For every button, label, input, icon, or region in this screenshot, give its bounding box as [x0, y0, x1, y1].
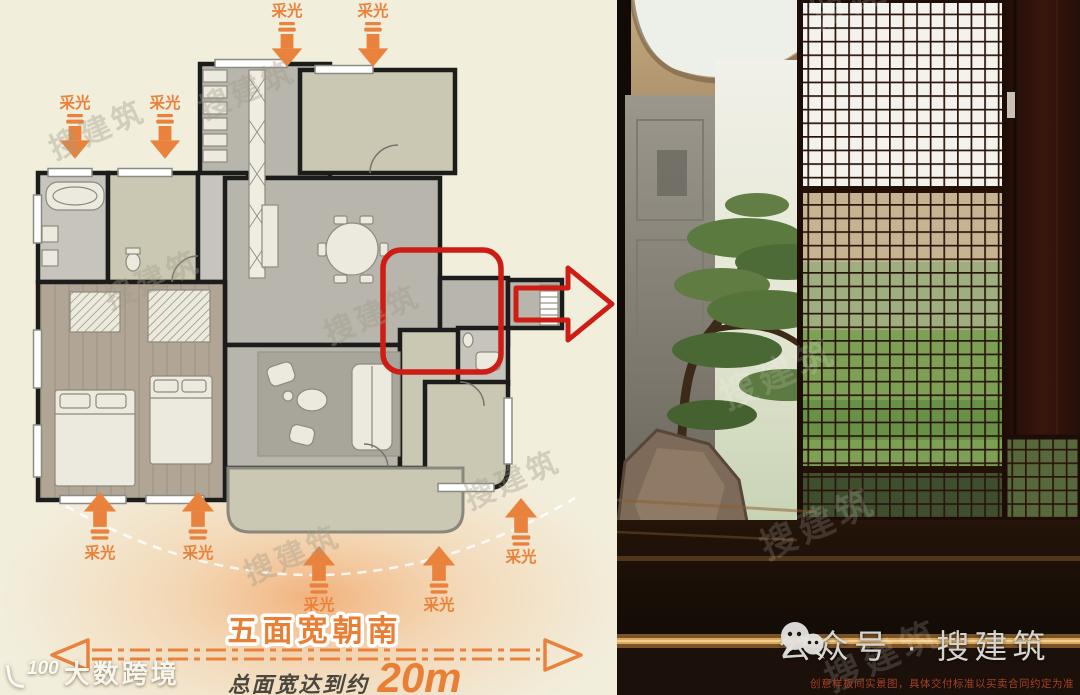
width-note-value: 20m	[376, 654, 461, 695]
daylight-label: 采光	[504, 547, 537, 566]
daylight-label: 采光	[148, 93, 181, 112]
width-note-prefix: 总面宽达到约	[228, 673, 370, 695]
lattice-screen	[800, 0, 1005, 520]
daylight-label: 采光	[83, 543, 116, 562]
floor-plan-panel: 采光 采光 采光 采光 采光 采光 采光 采光 采光 五面宽朝南 总面宽达到约 …	[0, 0, 617, 695]
brand-curl-icon	[6, 663, 24, 690]
daylight-label: 采光	[422, 595, 455, 614]
brand-logo: 100 大数跨境	[8, 658, 180, 689]
hinge	[1007, 92, 1015, 118]
wechat-icon	[778, 620, 830, 664]
disclaimer-text: 创意样板间实景图，具体交付标准以买卖合同约定为准	[810, 676, 1074, 691]
wood-panel	[1005, 0, 1080, 437]
daylight-label: 采光	[356, 1, 389, 20]
daylight-label: 采光	[58, 93, 91, 112]
daylight-label: 采光	[181, 543, 214, 562]
daylight-label: 采光	[270, 1, 303, 20]
brand-mark: 100	[27, 659, 59, 678]
lattice-lower-right	[1005, 437, 1080, 520]
official-account-caption: 公众号 · 搜建筑	[778, 620, 1050, 668]
headline-five-bays-south: 五面宽朝南	[228, 614, 403, 648]
daylight-label: 采光	[302, 595, 335, 614]
real-estate-promo-image: 采光 采光 采光 采光 采光 采光 采光 采光 采光 五面宽朝南 总面宽达到约 …	[0, 0, 1080, 695]
brand-name: 大数跨境	[64, 661, 180, 687]
interior-photo: 搜建筑 搜建筑 搜建筑 搜建筑	[617, 0, 1080, 695]
